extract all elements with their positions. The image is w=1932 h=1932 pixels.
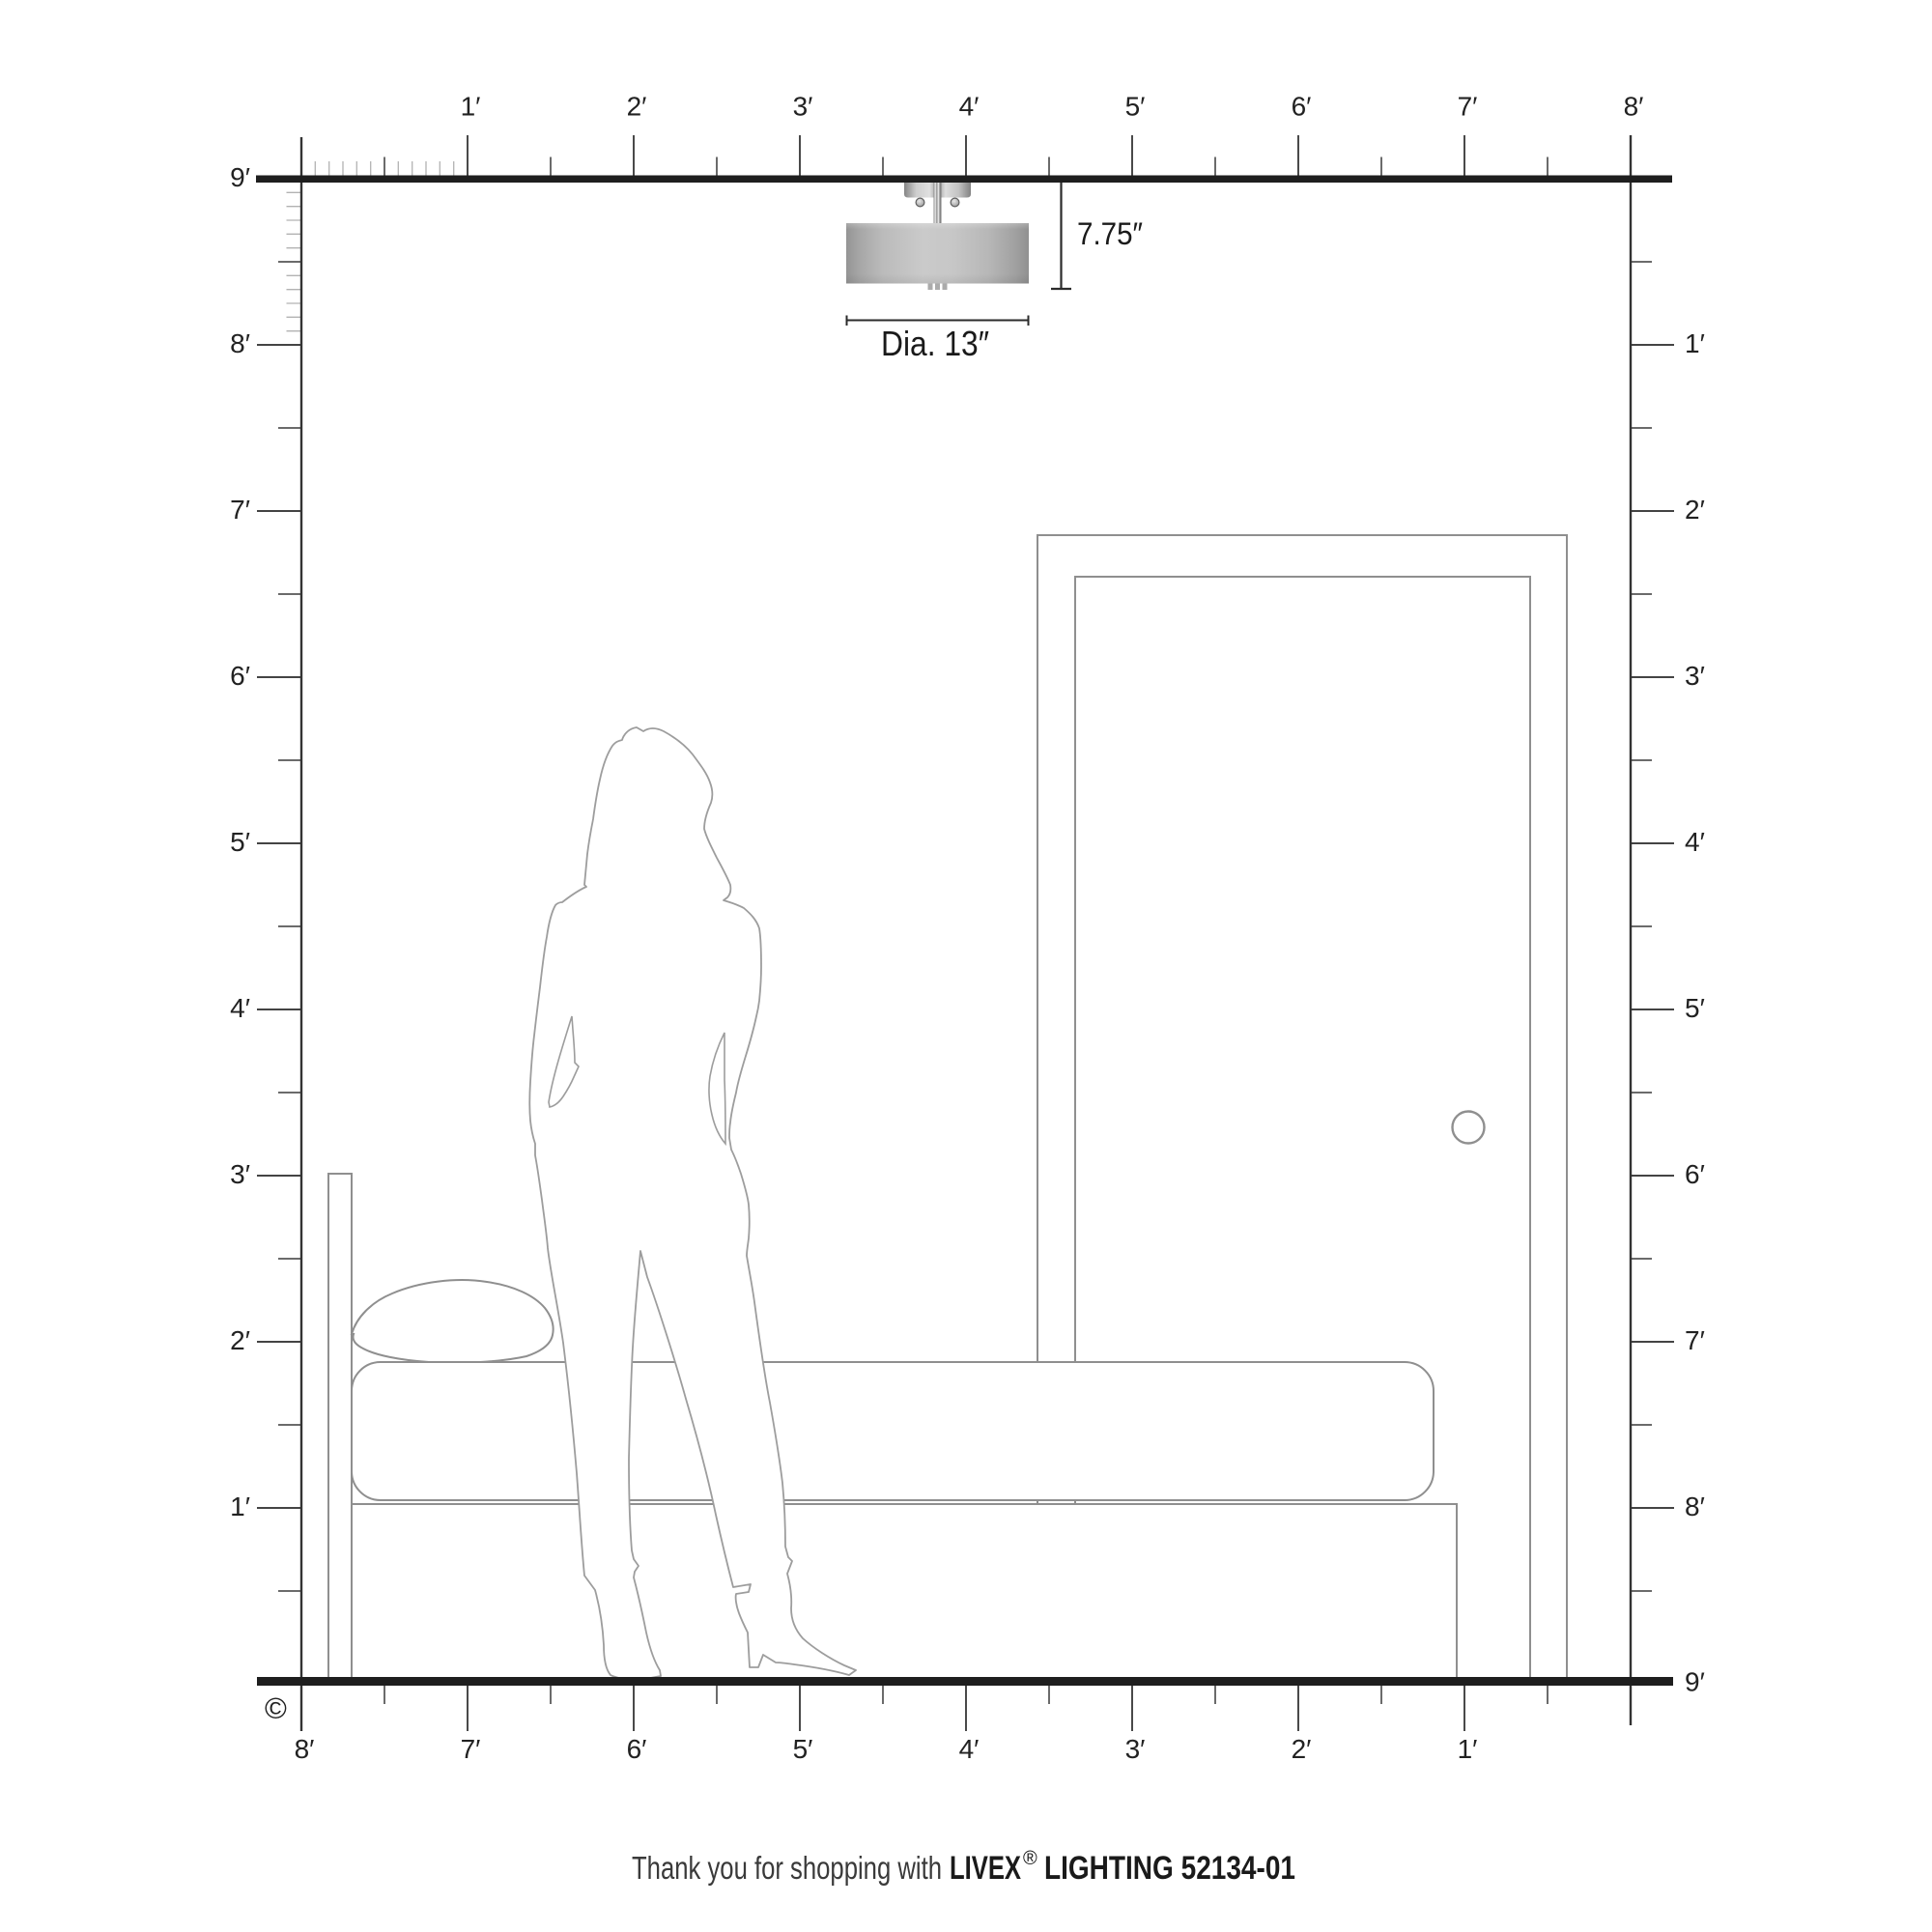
svg-text:1′: 1′ (461, 92, 481, 122)
svg-text:2′: 2′ (1685, 495, 1705, 525)
svg-text:1′: 1′ (230, 1492, 250, 1521)
svg-text:©: © (265, 1691, 287, 1725)
svg-text:4′: 4′ (959, 92, 980, 122)
svg-text:2′: 2′ (230, 1325, 250, 1355)
svg-text:7′: 7′ (230, 495, 250, 525)
svg-text:5′: 5′ (230, 827, 250, 857)
svg-text:7.75″: 7.75″ (1077, 216, 1143, 251)
svg-text:6′: 6′ (230, 661, 250, 691)
svg-text:6′: 6′ (1685, 1159, 1705, 1189)
svg-text:1′: 1′ (1685, 328, 1705, 358)
svg-text:®: ® (1023, 1848, 1037, 1869)
svg-text:8′: 8′ (1685, 1492, 1705, 1521)
svg-text:8′: 8′ (230, 328, 250, 358)
svg-text:5′: 5′ (1685, 993, 1705, 1023)
svg-text:4′: 4′ (230, 993, 250, 1023)
svg-text:6′: 6′ (627, 1734, 647, 1764)
svg-text:4′: 4′ (1685, 827, 1705, 857)
svg-text:7′: 7′ (461, 1734, 481, 1764)
svg-text:9′: 9′ (1685, 1667, 1705, 1697)
svg-text:5′: 5′ (793, 1734, 813, 1764)
svg-text:3′: 3′ (793, 92, 813, 122)
svg-text:Dia. 13″: Dia. 13″ (881, 324, 989, 363)
svg-text:2′: 2′ (1292, 1734, 1312, 1764)
svg-text:LIVEX: LIVEX (950, 1850, 1021, 1887)
svg-text:1′: 1′ (1458, 1734, 1478, 1764)
svg-text:7′: 7′ (1458, 92, 1478, 122)
svg-text:LIGHTING 52134-01: LIGHTING 52134-01 (1044, 1850, 1295, 1887)
svg-text:8′: 8′ (1624, 92, 1644, 122)
svg-text:2′: 2′ (627, 92, 647, 122)
svg-text:3′: 3′ (230, 1159, 250, 1189)
svg-text:4′: 4′ (959, 1734, 980, 1764)
svg-text:7′: 7′ (1685, 1325, 1705, 1355)
svg-text:3′: 3′ (1685, 661, 1705, 691)
svg-text:6′: 6′ (1292, 92, 1312, 122)
svg-text:5′: 5′ (1125, 92, 1146, 122)
svg-text:9′: 9′ (230, 162, 250, 192)
svg-text:8′: 8′ (295, 1734, 315, 1764)
svg-text:Thank you for shopping with: Thank you for shopping with (632, 1850, 942, 1886)
svg-text:3′: 3′ (1125, 1734, 1146, 1764)
